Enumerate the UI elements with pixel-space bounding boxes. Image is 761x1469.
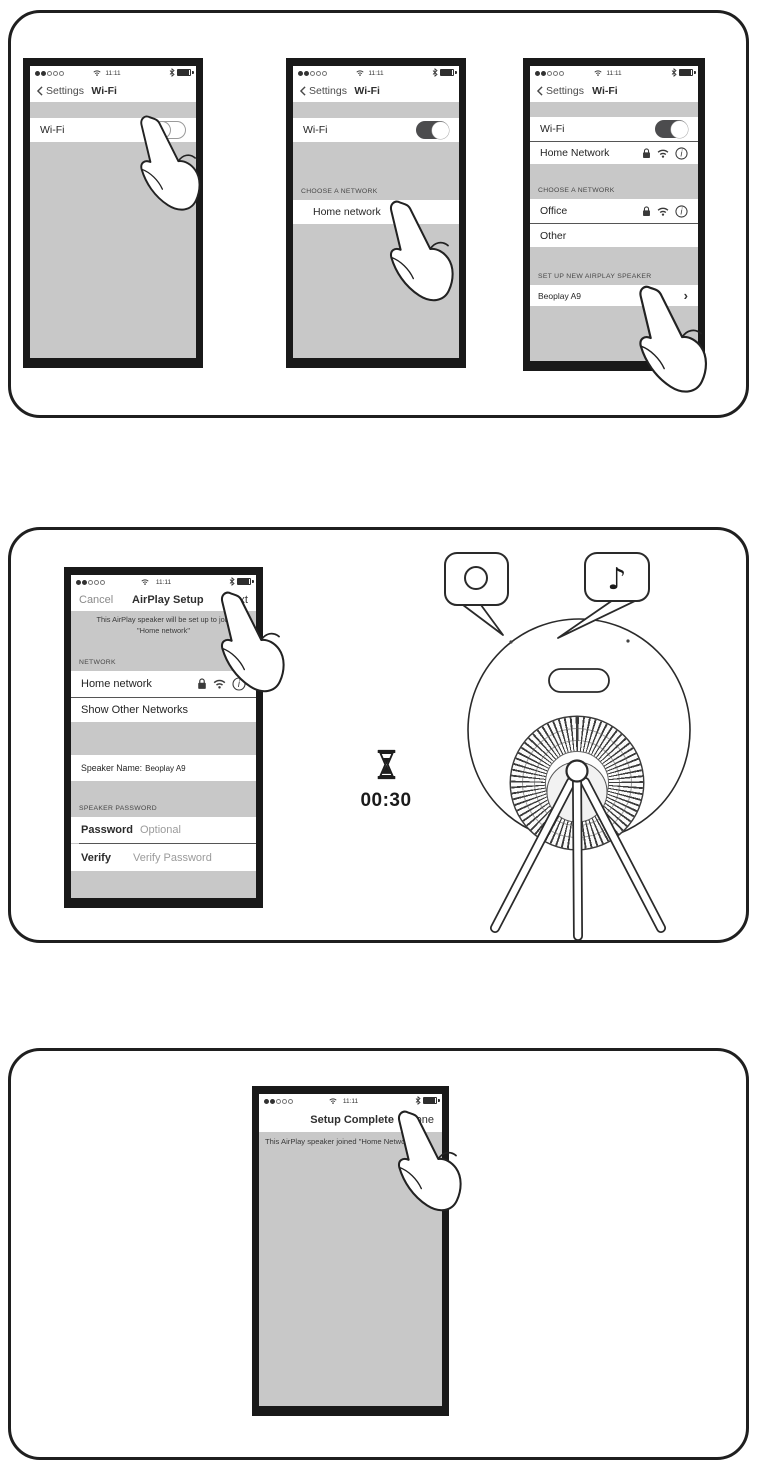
nav-bar: Settings Wi-Fi xyxy=(530,80,698,102)
page-title: AirPlay Setup xyxy=(132,594,204,606)
bluetooth-icon xyxy=(432,68,438,77)
page-title: Wi-Fi xyxy=(592,85,618,97)
chevron-left-icon xyxy=(37,86,43,96)
callout-button xyxy=(445,553,508,635)
chevron-left-icon xyxy=(300,86,306,96)
bluetooth-icon xyxy=(229,577,235,586)
status-bar: 11:11 xyxy=(259,1094,442,1108)
bluetooth-icon xyxy=(169,68,175,77)
page-title: Wi-Fi xyxy=(354,85,380,97)
cancel-button[interactable]: Cancel xyxy=(79,594,113,606)
pointing-finger-illustration xyxy=(630,284,720,419)
pointing-finger-illustration xyxy=(381,199,466,326)
verify-label: Verify xyxy=(81,852,111,864)
back-label: Settings xyxy=(546,85,584,97)
nav-bar: Settings Wi-Fi xyxy=(293,80,459,102)
speaker-name-row[interactable]: Speaker Name: Beoplay A9 xyxy=(71,755,256,781)
wifi-toggle-on[interactable] xyxy=(655,120,688,138)
network-name: Home Network xyxy=(540,147,609,159)
wifi-icon xyxy=(657,207,669,216)
instruction-panel-setup-complete: 11:11 Setup Complete Done This AirPlay s… xyxy=(8,1048,749,1460)
chevron-left-icon xyxy=(537,86,543,96)
battery-icon xyxy=(177,69,191,76)
network-row-other[interactable]: Other xyxy=(530,224,698,247)
back-button[interactable]: Settings xyxy=(537,85,584,97)
section-label: SET UP NEW AIRPLAY SPEAKER xyxy=(538,273,651,280)
section-label: CHOOSE A NETWORK xyxy=(538,187,615,194)
callout-sound: ♪ xyxy=(558,553,649,638)
info-icon[interactable] xyxy=(675,205,688,218)
pointing-finger-illustration xyxy=(389,1109,474,1236)
password-field-row[interactable]: Password Optional xyxy=(71,817,256,843)
wifi-toggle-row[interactable]: Wi-Fi xyxy=(293,118,459,142)
pointing-finger-illustration xyxy=(212,590,297,717)
status-bar: 11:11 xyxy=(71,575,256,589)
row-label: Show Other Networks xyxy=(81,704,188,716)
wifi-row-label: Wi-Fi xyxy=(540,123,565,135)
wifi-toggle-row[interactable]: Wi-Fi xyxy=(530,117,698,141)
leg-hub-ring xyxy=(567,761,588,782)
verify-field-row[interactable]: Verify Verify Password xyxy=(71,844,256,871)
lock-icon xyxy=(197,678,207,690)
music-note-icon: ♪ xyxy=(607,562,626,597)
network-name: Office xyxy=(540,205,567,217)
wait-timer: 00:30 xyxy=(351,746,421,812)
info-icon[interactable] xyxy=(675,147,688,160)
lock-icon xyxy=(642,206,651,217)
bluetooth-icon xyxy=(415,1096,421,1105)
wifi-icon xyxy=(657,149,669,158)
status-bar: 11:11 xyxy=(293,66,459,80)
password-label: Password xyxy=(81,824,133,836)
network-name: Other xyxy=(540,230,566,242)
section-label: NETWORK xyxy=(79,659,116,666)
verify-input[interactable]: Verify Password xyxy=(133,852,212,864)
page-title: Setup Complete xyxy=(310,1114,394,1126)
battery-icon xyxy=(423,1097,437,1104)
back-label: Settings xyxy=(46,85,84,97)
manual-page: 11:11 Settings Wi-Fi Wi-Fi xyxy=(0,0,761,1469)
section-label: SPEAKER PASSWORD xyxy=(79,805,157,812)
bluetooth-icon xyxy=(671,68,677,77)
battery-icon xyxy=(440,69,454,76)
network-name: Home network xyxy=(313,206,381,218)
instruction-panel-airplay-setup: ♪ 00:30 11:11 xyxy=(8,527,749,943)
speaker-name: Beoplay A9 xyxy=(538,291,581,301)
password-input[interactable]: Optional xyxy=(140,824,181,836)
connected-network-row[interactable]: Home Network xyxy=(530,142,698,164)
battery-icon xyxy=(679,69,693,76)
wifi-row-label: Wi-Fi xyxy=(40,124,65,136)
page-title: Wi-Fi xyxy=(91,85,117,97)
network-name: Home network xyxy=(81,678,152,690)
back-button[interactable]: Settings xyxy=(300,85,347,97)
back-label: Settings xyxy=(309,85,347,97)
lock-icon xyxy=(642,148,651,159)
speaker-name-value: Beoplay A9 xyxy=(145,764,185,773)
speaker-name-label: Speaker Name: xyxy=(81,763,142,773)
status-bar: 11:11 xyxy=(530,66,698,80)
section-label: CHOOSE A NETWORK xyxy=(301,188,378,195)
network-row-office[interactable]: Office xyxy=(530,199,698,223)
wifi-toggle-on[interactable] xyxy=(416,121,449,139)
wifi-row-label: Wi-Fi xyxy=(303,124,328,136)
timer-value: 00:30 xyxy=(351,790,421,812)
hourglass-icon xyxy=(373,746,400,783)
back-button[interactable]: Settings xyxy=(37,85,84,97)
speaker-legs xyxy=(495,776,661,936)
status-bar: 11:11 xyxy=(30,66,196,80)
battery-icon xyxy=(237,578,251,585)
pointing-finger-illustration xyxy=(132,114,212,234)
nav-bar: Settings Wi-Fi xyxy=(30,80,196,102)
